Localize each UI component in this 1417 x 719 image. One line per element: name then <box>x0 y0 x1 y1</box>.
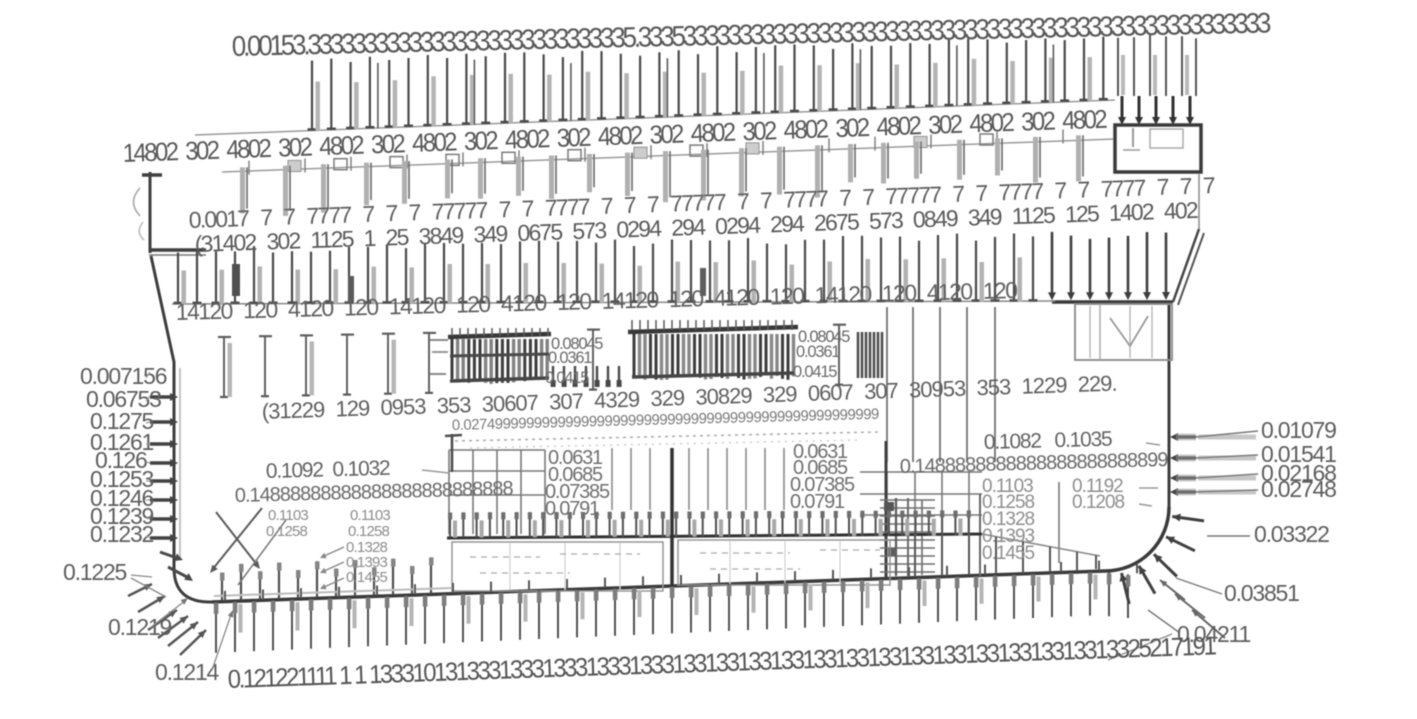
svg-text:0.0361: 0.0361 <box>548 349 592 367</box>
svg-text:0.0415: 0.0415 <box>793 363 837 381</box>
svg-text:0.0415: 0.0415 <box>545 369 589 387</box>
svg-text:0.01079: 0.01079 <box>1261 417 1336 443</box>
svg-text:0.1208: 0.1208 <box>1072 492 1125 513</box>
svg-text:0.0361: 0.0361 <box>796 343 840 361</box>
svg-text:0.1092 0.1032: 0.1092 0.1032 <box>266 457 391 483</box>
svg-text:0.03322: 0.03322 <box>1254 521 1329 547</box>
svg-text:0.0791: 0.0791 <box>790 491 845 513</box>
svg-text:0.1214: 0.1214 <box>155 659 220 685</box>
svg-text:0.1455: 0.1455 <box>346 569 388 586</box>
svg-text:0.1258: 0.1258 <box>348 523 390 540</box>
svg-text:0.03851: 0.03851 <box>1224 580 1299 606</box>
svg-text:0.1232: 0.1232 <box>90 521 154 547</box>
svg-text:0.1225: 0.1225 <box>63 559 127 585</box>
svg-text:0.02748: 0.02748 <box>1261 476 1336 502</box>
svg-text:0.0791: 0.0791 <box>545 498 600 520</box>
svg-text:0.1103: 0.1103 <box>268 507 308 524</box>
svg-text:0.1455: 0.1455 <box>982 543 1035 564</box>
svg-text:0.1103: 0.1103 <box>350 507 390 524</box>
svg-text:0.1258: 0.1258 <box>266 523 308 540</box>
